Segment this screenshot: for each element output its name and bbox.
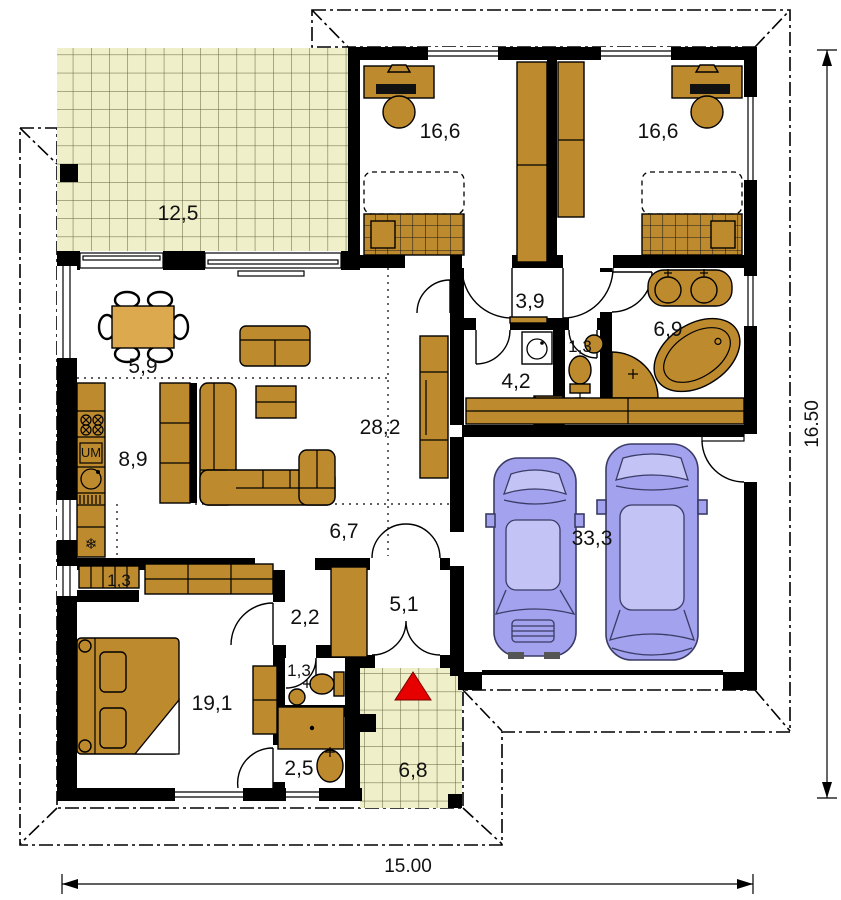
dimension-height: 16.50 [802,50,837,798]
desk-lamp-icon [696,65,718,72]
chair [383,96,415,128]
garage-storage [466,398,744,424]
bedroom-right-furniture [558,62,742,255]
room-label-bedroom-master: 19,1 [192,692,233,715]
window-bedroom-master [175,788,243,801]
garage-side-door [702,432,744,482]
bathroom-main-fixtures [612,269,753,407]
kitchen-island [160,383,190,503]
dining-table [112,306,174,348]
kitchen-counter [77,383,105,557]
sliding-door-terrace [80,253,341,276]
room-label-bathroom-small: 2,5 [284,757,313,780]
terrace-entry-tiles [358,668,462,808]
desk-lamp-icon [388,65,410,72]
room-label-dining: 5,9 [128,355,157,378]
window-bathroom [744,276,757,326]
window-dining [57,266,77,358]
room-label-utility: 4,2 [501,370,530,393]
car-roof [620,505,684,610]
sink [655,277,681,303]
toilet [310,674,334,694]
room-label-kitchen: 8,9 [118,448,147,471]
shelf [510,317,547,323]
living-furniture [200,326,448,505]
small-sink [289,689,305,705]
window-bedroom-right [601,47,671,60]
room-label-hall-upper: 3,9 [515,290,544,313]
dining-furniture [99,292,188,362]
car-roof [506,520,560,590]
room-label-bedroom-right: 16,6 [638,120,679,143]
window-closet [57,566,77,596]
wheel [508,652,524,659]
keyboard [376,84,416,94]
window-kitchen [57,500,77,540]
room-label-garage: 33,3 [572,527,613,550]
room-label-living: 28,2 [360,416,401,439]
toilet [569,356,591,384]
fridge-icon: ❄ [85,536,98,553]
tv-unit [420,336,448,478]
room-label-bathroom-main: 6,9 [653,318,682,341]
mirror [597,500,606,514]
mirror [486,514,495,527]
wardrobe [517,62,547,262]
room-label-bedroom-left: 16,6 [420,120,461,143]
terrace-top-tiles [57,48,348,251]
pillow [100,652,126,692]
keyboard [690,84,730,94]
floor-plan-drawing: UM ❄ [0,0,841,900]
terrace-column [60,164,78,182]
window-bedroom-right-side [744,97,757,180]
room-label-hall-lower: 6,7 [329,520,358,543]
dishwasher-label: UM [81,445,101,460]
dimension-width-label: 15.00 [384,856,432,877]
room-label-terrace-entry: 6,8 [398,759,427,782]
terrace-entry-post [448,794,462,808]
window-bedroom-left [428,47,498,60]
car-large [597,444,707,660]
room-label-wc-lower: 1,3 [287,661,311,680]
shower [612,352,658,398]
pillow [100,708,126,748]
entry-wardrobe [331,567,367,657]
room-label-closet: 1,3 [107,571,131,590]
room-label-hall-bedroom: 2,2 [290,606,319,629]
mirror [575,514,584,527]
terrace-entry-column [358,714,376,732]
bed-pillow [364,172,464,214]
wheel [544,652,560,659]
dimension-height-label: 16.50 [802,400,823,448]
floor-plan-page: UM ❄ [0,0,841,900]
chair [691,96,723,128]
sink [691,277,717,303]
dimension-width: 15.00 [62,856,753,894]
window-bathroom-small [286,788,319,801]
room-label-terrace-top: 12,5 [158,202,199,225]
car-small [486,458,584,659]
bedroom-left-furniture [364,62,547,262]
room-label-entry: 5,1 [389,593,418,616]
mirror [698,500,707,514]
room-label-wc-upper: 1,3 [568,337,592,356]
bed-pillow [642,172,742,214]
